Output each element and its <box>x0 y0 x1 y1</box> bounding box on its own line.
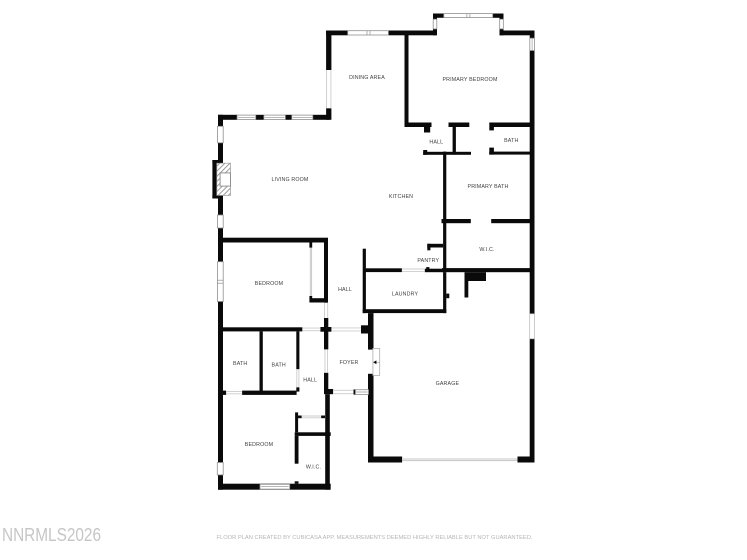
svg-text:BATH: BATH <box>504 138 518 144</box>
svg-text:LIVING ROOM: LIVING ROOM <box>272 177 309 183</box>
svg-text:BATH: BATH <box>272 363 286 369</box>
svg-text:BEDROOM: BEDROOM <box>255 281 283 287</box>
svg-text:HALL: HALL <box>303 378 317 384</box>
svg-text:KITCHEN: KITCHEN <box>389 194 413 200</box>
svg-text:PRIMARY BATH: PRIMARY BATH <box>468 184 509 190</box>
svg-text:GARAGE: GARAGE <box>436 381 460 387</box>
svg-text:W.I.C.: W.I.C. <box>306 465 321 471</box>
svg-text:HALL: HALL <box>429 140 443 146</box>
svg-text:W.I.C.: W.I.C. <box>479 247 494 253</box>
svg-text:PRIMARY BEDROOM: PRIMARY BEDROOM <box>442 77 497 83</box>
svg-text:PANTRY: PANTRY <box>417 258 439 264</box>
svg-text:HALL: HALL <box>338 287 352 293</box>
svg-text:LAUNDRY: LAUNDRY <box>392 292 419 298</box>
svg-text:DINING AREA: DINING AREA <box>349 75 385 81</box>
svg-text:BEDROOM: BEDROOM <box>245 442 273 448</box>
svg-text:BATH: BATH <box>233 361 247 367</box>
svg-text:NNRMLS2026: NNRMLS2026 <box>2 525 101 545</box>
svg-text:FOYER: FOYER <box>340 360 359 366</box>
svg-text:FLOOR PLAN CREATED BY CUBICASA: FLOOR PLAN CREATED BY CUBICASA APP. MEAS… <box>217 535 533 541</box>
